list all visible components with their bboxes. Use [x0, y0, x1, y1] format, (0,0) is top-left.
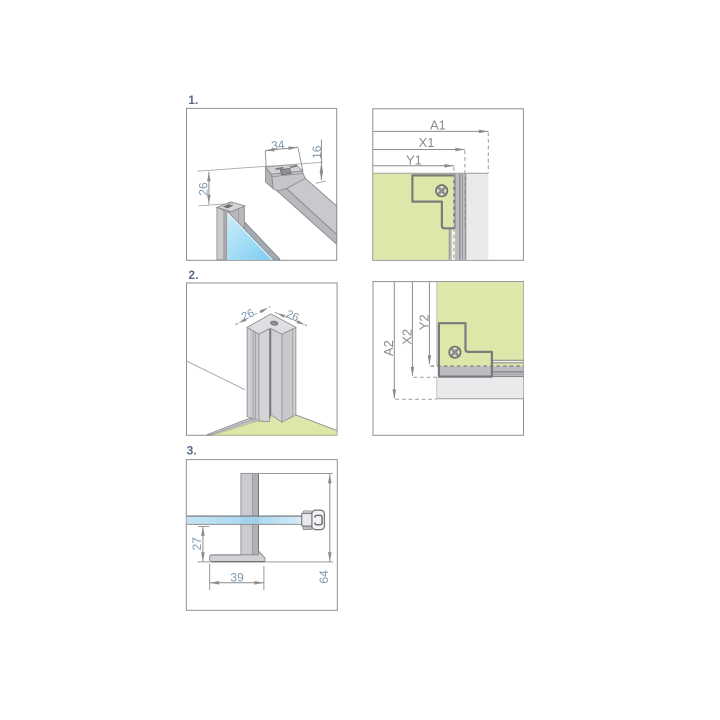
svg-text:1.: 1. [188, 93, 198, 107]
svg-text:34: 34 [271, 137, 286, 152]
svg-text:A2: A2 [381, 340, 396, 356]
svg-text:X2: X2 [400, 329, 415, 345]
svg-text:2.: 2. [188, 268, 198, 282]
svg-text:3.: 3. [187, 444, 197, 458]
svg-text:Y2: Y2 [417, 314, 432, 330]
svg-text:27: 27 [190, 537, 204, 551]
svg-text:X1: X1 [419, 135, 435, 150]
svg-text:Y1: Y1 [406, 153, 422, 168]
svg-text:26: 26 [197, 182, 211, 196]
svg-text:64: 64 [317, 570, 331, 584]
svg-text:39: 39 [230, 571, 244, 585]
svg-text:A1: A1 [430, 118, 446, 133]
svg-text:16: 16 [310, 145, 324, 159]
